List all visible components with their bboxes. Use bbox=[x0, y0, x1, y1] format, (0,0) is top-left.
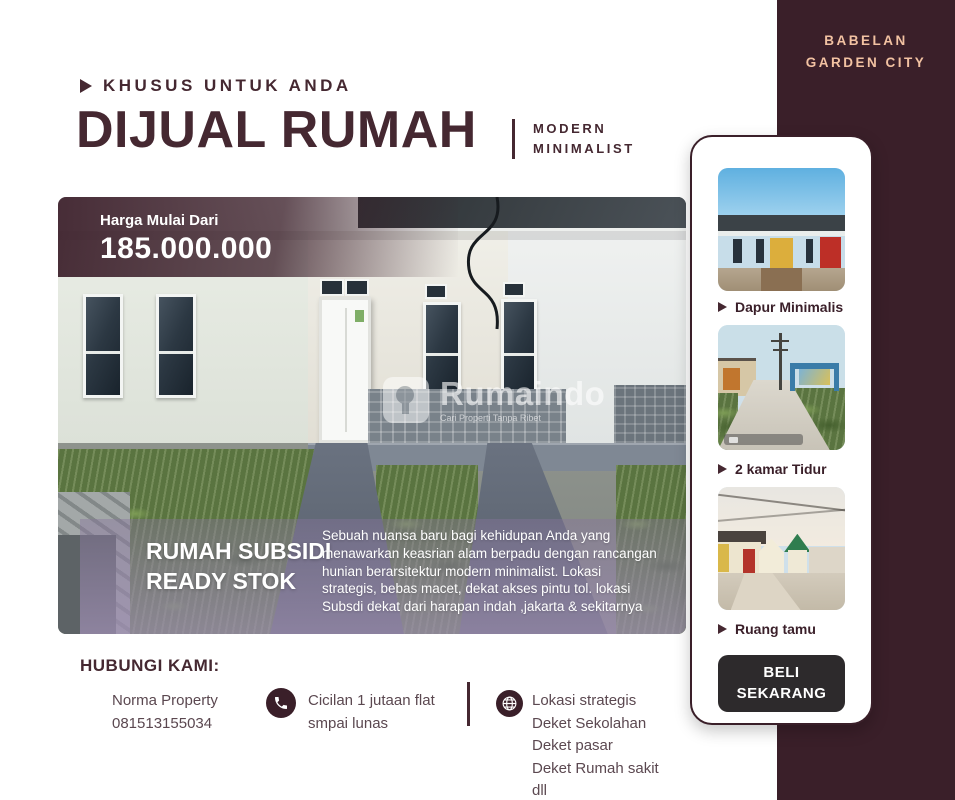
gallery-label: 2 kamar Tidur bbox=[718, 461, 827, 477]
phone-icon bbox=[266, 688, 296, 718]
gps-watermark bbox=[724, 434, 803, 445]
price-label: Harga Mulai Dari bbox=[100, 212, 458, 229]
location-line: Deket pasar bbox=[532, 735, 659, 758]
thumb-yellow-wall bbox=[718, 544, 729, 572]
phone-glyph bbox=[273, 695, 289, 711]
gallery-thumb-ruang bbox=[718, 487, 845, 610]
gallery-label-text: Ruang tamu bbox=[735, 621, 816, 637]
page-title: DIJUAL RUMAH bbox=[76, 100, 477, 160]
brand-title: BABELAN GARDEN CITY bbox=[787, 30, 945, 75]
thumb-sky bbox=[718, 168, 845, 220]
thumb-red-door bbox=[820, 237, 842, 268]
page-subtitle: MODERN MINIMALIST bbox=[512, 119, 663, 159]
location-list: Lokasi strategis Deket Sekolahan Deket p… bbox=[532, 690, 659, 800]
agent-phone: 081513155034 bbox=[112, 713, 218, 736]
watermark-tagline: Cari Properti Tanpa Ribet bbox=[440, 413, 605, 423]
bullet-triangle-icon bbox=[80, 79, 92, 93]
eyebrow-text: KHUSUS UNTUK ANDA bbox=[103, 76, 352, 96]
buy-now-button[interactable]: BELI SEKARANG bbox=[718, 655, 845, 712]
gallery-label-text: Dapur Minimalis bbox=[735, 299, 843, 315]
buy-now-label: BELI SEKARANG bbox=[736, 663, 828, 704]
thumb-window bbox=[756, 239, 764, 262]
house-door bbox=[319, 297, 371, 443]
rumaindo-logo-icon bbox=[383, 377, 429, 423]
gallery-thumb-kamar bbox=[718, 325, 845, 450]
thumb-path bbox=[761, 268, 802, 291]
thumb-gate-post bbox=[790, 363, 795, 392]
house-window bbox=[83, 294, 123, 398]
bullet-triangle-icon bbox=[718, 464, 727, 474]
thumb-red-door bbox=[743, 549, 754, 574]
eyebrow-row: KHUSUS UNTUK ANDA bbox=[80, 76, 352, 96]
watermark: Rumaindo Cari Properti Tanpa Ribet bbox=[383, 377, 605, 423]
thumb-wall bbox=[788, 550, 807, 575]
badge-line1: RUMAH SUBSIDI bbox=[146, 537, 331, 567]
tile-wainscot bbox=[614, 385, 686, 443]
thumb-window bbox=[806, 239, 814, 262]
globe-glyph bbox=[501, 695, 518, 712]
location-line: Deket Sekolahan bbox=[532, 713, 659, 736]
thumb-gate-post bbox=[834, 363, 839, 392]
thumb-gate-sign bbox=[799, 369, 829, 385]
flyer-page: BABELAN GARDEN CITY KHUSUS UNTUK ANDA DI… bbox=[0, 0, 955, 800]
vent-window bbox=[425, 284, 447, 299]
location-line: Lokasi strategis bbox=[532, 690, 659, 713]
gallery-thumb-dapur bbox=[718, 168, 845, 291]
hero-photo: Harga Mulai Dari 185.000.000 Rumaindo Ca… bbox=[58, 197, 686, 634]
thumb-roof bbox=[718, 215, 845, 231]
thumb-pole-crossarm bbox=[773, 349, 788, 351]
badge-line2: READY STOK bbox=[146, 567, 331, 597]
bullet-triangle-icon bbox=[718, 624, 727, 634]
thumb-window bbox=[733, 239, 742, 262]
globe-icon bbox=[496, 690, 523, 717]
agent-info: Norma Property 081513155034 bbox=[112, 690, 218, 735]
house-window bbox=[156, 294, 196, 398]
location-line: Deket Rumah sakit bbox=[532, 758, 659, 781]
hanging-cable bbox=[453, 197, 523, 337]
price-value: 185.000.000 bbox=[100, 232, 458, 266]
gallery-label: Ruang tamu bbox=[718, 621, 816, 637]
property-description: Sebuah nuansa baru bagi kehidupan Anda y… bbox=[322, 527, 658, 616]
contact-divider bbox=[467, 682, 470, 726]
thumb-far-houses bbox=[809, 547, 845, 574]
hero-bottom-overlay: RUMAH SUBSIDI READY STOK Sebuah nuansa b… bbox=[80, 519, 686, 634]
gallery-card: Dapur Minimalis 2 kamar Tidur bbox=[690, 135, 873, 725]
gallery-label-text: 2 kamar Tidur bbox=[735, 461, 827, 477]
thumb-yellow-door bbox=[770, 238, 793, 268]
bullet-triangle-icon bbox=[718, 302, 727, 312]
thumb-pole-crossarm bbox=[771, 340, 789, 342]
installment-text: Cicilan 1 jutaan flat smpai lunas bbox=[308, 690, 478, 735]
location-line: dll bbox=[532, 780, 659, 800]
vent-window bbox=[320, 279, 344, 296]
agent-name: Norma Property bbox=[112, 690, 218, 713]
thumb-house-accent bbox=[723, 368, 740, 391]
status-badge: RUMAH SUBSIDI READY STOK bbox=[146, 537, 331, 597]
contact-heading: HUBUNGI KAMI: bbox=[80, 656, 220, 676]
watermark-name: Rumaindo bbox=[440, 377, 605, 410]
vent-window bbox=[345, 279, 369, 296]
gallery-label: Dapur Minimalis bbox=[718, 299, 843, 315]
price-overlay: Harga Mulai Dari 185.000.000 bbox=[58, 197, 458, 277]
door-sticker bbox=[355, 310, 364, 322]
